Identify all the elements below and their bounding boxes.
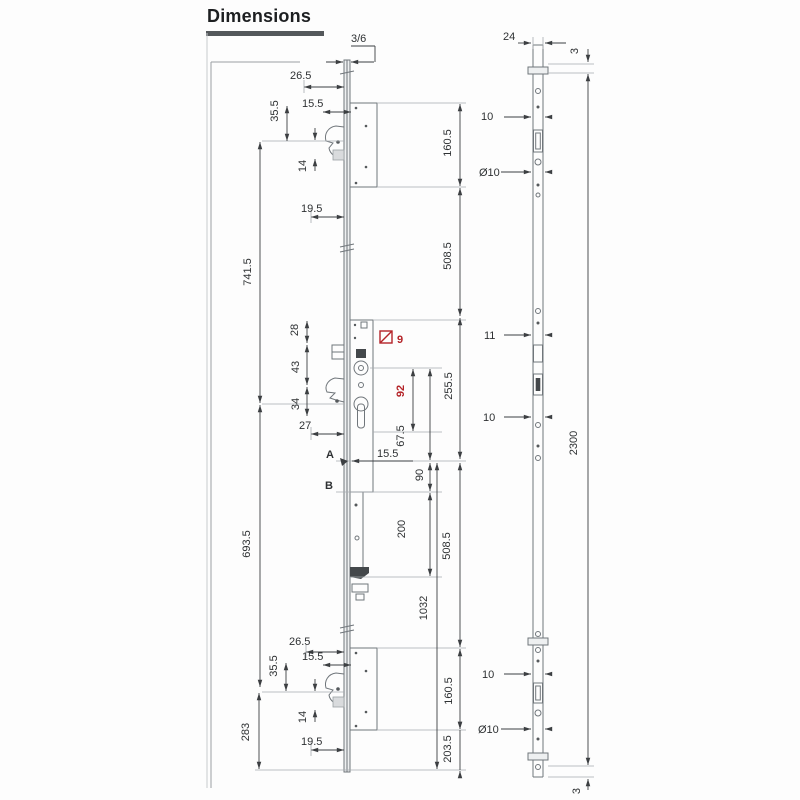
dim-lower-case-height: 160.5: [443, 677, 455, 705]
right-view-dimensions: [501, 37, 594, 790]
dim-span-upper-mid: 508.5: [442, 242, 454, 270]
dim-span-centre: 255.5: [443, 372, 455, 400]
dim-centre-28: 28: [289, 324, 301, 336]
dim-centre-hole2: 10: [483, 412, 495, 424]
dim-lower-hole: 10: [482, 669, 494, 681]
dim-centre-43: 43: [290, 361, 302, 373]
dim-pz-distance: 92: [395, 385, 407, 397]
catalog-page: Dimensions: [0, 0, 800, 800]
label-point-b: B: [325, 480, 333, 492]
dim-span-overall: 1032: [418, 596, 430, 620]
dimension-drawing: 3/6 26.5 15.5 35.5 14 19.5 160.5 508.5 7…: [0, 0, 800, 800]
dim-span-mid-lower: 508.5: [441, 532, 453, 560]
right-view-geometry: [528, 45, 548, 777]
left-view-dimensions: [259, 46, 460, 778]
dim-strip-width: 24: [503, 31, 515, 43]
dim-top-end: 3: [569, 48, 581, 54]
dim-lower-pin: 14: [297, 711, 309, 723]
dim-lower-hook-height: 35.5: [268, 655, 280, 676]
dim-span-lower: 693.5: [241, 530, 253, 558]
dim-spindle-size: 9: [397, 334, 403, 346]
dim-centre-hole: 11: [484, 330, 495, 342]
dim-lower-backset: 15.5: [302, 651, 323, 663]
left-view-geometry: [255, 60, 466, 772]
dim-faceplate-thickness: 3/6: [351, 33, 366, 45]
dim-total-length: 2300: [568, 431, 580, 455]
dim-upper-below: 19.5: [301, 203, 322, 215]
dim-centre-90: 90: [414, 469, 426, 481]
dim-upper-offset: 26.5: [290, 70, 311, 82]
dim-upper-hole: 10: [481, 111, 493, 123]
centre-hook-bolt: [326, 378, 344, 402]
dim-lower-end-height: 203.5: [442, 735, 454, 763]
fixing-hole: [536, 89, 541, 94]
dim-upper-backset: 15.5: [302, 98, 323, 110]
dim-span-upper: 741.5: [242, 258, 254, 286]
lower-hook-case: [325, 648, 377, 730]
dim-span-bottom: 283: [240, 723, 252, 741]
dim-bottom-end: 3: [571, 788, 583, 794]
dim-lower-dia: Ø10: [478, 724, 499, 736]
upper-hook-case: [325, 103, 377, 187]
dim-centre-200: 200: [396, 520, 408, 538]
dim-lower-offset: 26.5: [289, 636, 310, 648]
right-view-labels: 24 3 10 Ø10 11 10 2300 10 Ø10 3: [478, 31, 583, 794]
label-point-a: A: [326, 449, 334, 461]
spindle-follower: [356, 349, 366, 358]
fixing-hole: [535, 159, 541, 165]
dim-upper-case-height: 160.5: [442, 129, 454, 157]
dim-upper-pin: 14: [297, 160, 309, 172]
dim-centre-34: 34: [290, 398, 302, 410]
handle-follower: [354, 361, 368, 375]
dim-centre-cyl: 67.5: [395, 425, 407, 446]
dim-lower-below: 19.5: [301, 736, 322, 748]
dim-upper-dia: Ø10: [479, 167, 500, 179]
dim-centre-backset: 15.5: [377, 448, 398, 460]
dim-upper-hook-height: 35.5: [269, 100, 281, 121]
latch-slot: [534, 345, 543, 362]
dim-centre-27: 27: [299, 420, 311, 432]
